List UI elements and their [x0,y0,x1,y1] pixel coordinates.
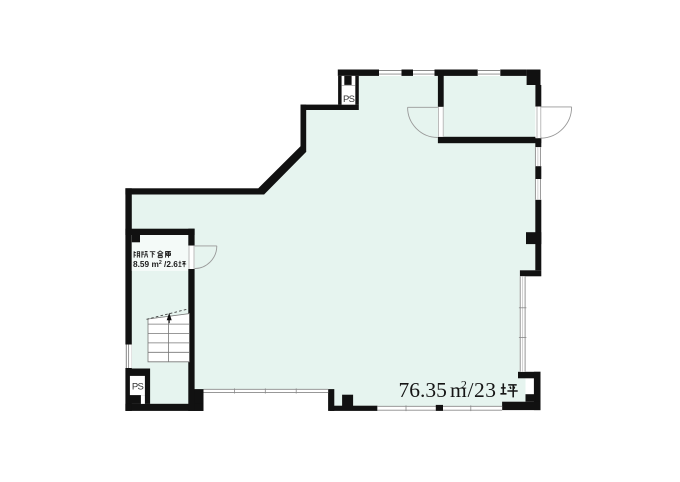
svg-text:PS: PS [132,381,144,392]
svg-text:2: 2 [461,378,467,392]
svg-text:76.35: 76.35 [399,378,447,402]
svg-text:/23: /23 [468,378,497,402]
svg-text:PS: PS [343,94,355,105]
svg-text:8.59 m2 /2.6: 8.59 m2 /2.6 [133,259,178,269]
